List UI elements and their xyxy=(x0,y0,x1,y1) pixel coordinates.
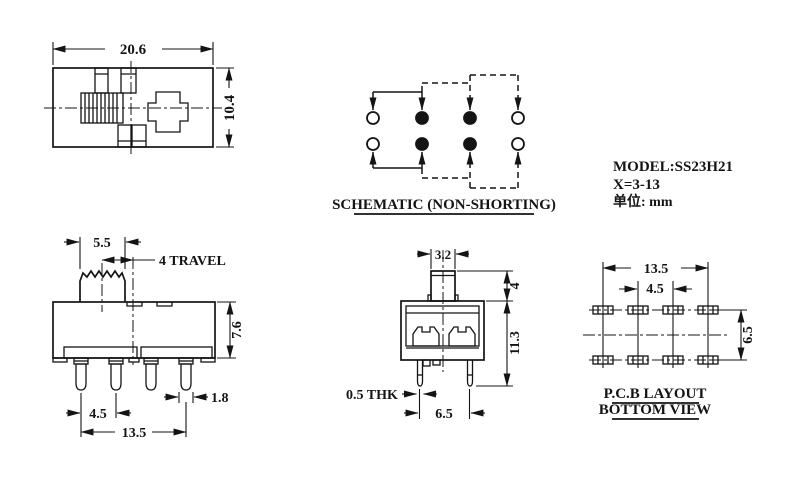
top-view-height-label: 10.4 xyxy=(222,94,238,121)
pcb-grid-lines xyxy=(583,262,729,368)
side-view-contacts xyxy=(413,327,475,346)
side-knob-width-label: 3.2 xyxy=(435,247,451,262)
model-info: MODEL:SS23H21 X=3-13 单位: mm xyxy=(613,159,733,210)
front-knob-width-label: 5.5 xyxy=(93,236,111,251)
front-view-body-outline xyxy=(53,302,215,358)
front-view-centerlines xyxy=(102,257,133,365)
travel-label: 4 TRAVEL xyxy=(159,254,226,269)
pcb-pitch-label: 4.5 xyxy=(646,282,664,297)
pcb-span-label: 13.5 xyxy=(644,262,669,277)
schematic-row1-links xyxy=(373,75,518,110)
technical-drawing-canvas: 20.6 10.4 xyxy=(0,0,800,480)
schematic-row2-links xyxy=(373,152,518,188)
pin xyxy=(146,364,156,390)
pin xyxy=(181,364,191,390)
pcb-layout-view: 13.5 4.5 6.5 P.C.B LAYOUT BOTTOM VIEW xyxy=(583,262,756,419)
pcb-layout-title: P.C.B LAYOUT xyxy=(604,386,707,402)
pin-pitch-label: 4.5 xyxy=(89,407,107,422)
side-height-label: 11.3 xyxy=(508,331,523,355)
model-number-label: MODEL:SS23H21 xyxy=(613,159,733,175)
top-view-centerlines xyxy=(44,61,222,154)
side-view: 3.2 4 11.3 6.5 0.5 THK xyxy=(346,247,523,422)
side-view-bottom-tabs xyxy=(423,360,440,366)
schematic-view: SCHEMATIC (NON-SHORTING) xyxy=(332,75,556,214)
top-view: 20.6 10.4 xyxy=(44,42,238,154)
pcb-row-spacing-label: 6.5 xyxy=(741,326,756,344)
pin xyxy=(418,360,423,386)
pin-span-label: 13.5 xyxy=(122,426,147,441)
pin-symbol-open xyxy=(367,138,379,150)
side-view-pins xyxy=(418,360,473,386)
pin-symbol-open xyxy=(512,138,524,150)
side-view-knob-height-dimension: 4 xyxy=(457,271,523,301)
top-view-width-dimension: 20.6 xyxy=(53,42,213,65)
front-view-body-height-dimension: 7.6 xyxy=(217,302,245,358)
pin-symbol-filled xyxy=(416,112,428,124)
pin-symbol-open xyxy=(512,112,524,124)
side-knob-height-label: 4 xyxy=(508,283,523,290)
side-pin-spacing-label: 6.5 xyxy=(435,407,453,422)
pin-symbol-filled xyxy=(464,138,476,150)
front-view-travel-dimension: 4 TRAVEL xyxy=(102,254,226,269)
bottom-view-title: BOTTOM VIEW xyxy=(599,402,711,418)
side-view-height-dimension: 11.3 xyxy=(476,301,523,386)
top-view-cross-cutout xyxy=(148,92,188,132)
pin-symbol-filled xyxy=(416,138,428,150)
pin xyxy=(111,364,121,390)
pin-symbol-open xyxy=(367,112,379,124)
pcb-pitch-dimension: 4.5 xyxy=(619,282,692,297)
pcb-span-dimension: 13.5 xyxy=(603,262,708,277)
schematic-terminals xyxy=(367,112,524,150)
pin xyxy=(76,364,86,390)
terminal-thickness-label: 0.5 THK xyxy=(346,388,398,403)
pin xyxy=(468,360,473,386)
pin-symbol-filled xyxy=(464,112,476,124)
front-view-pin-width-dimension: 1.8 xyxy=(164,391,229,406)
top-view-width-label: 20.6 xyxy=(120,42,147,58)
travel-range-label: X=3-13 xyxy=(613,177,660,193)
front-body-height-label: 7.6 xyxy=(230,321,245,339)
side-view-thickness-dimension: 0.5 THK xyxy=(346,388,437,403)
schematic-title: SCHEMATIC (NON-SHORTING) xyxy=(332,197,556,213)
unit-label: 单位: mm xyxy=(613,193,673,210)
pin-width-label: 1.8 xyxy=(211,391,229,406)
front-view-base-plates xyxy=(53,347,215,362)
front-view: 5.5 4 TRAVEL 7.6 4.5 13.5 1.8 xyxy=(53,236,245,441)
